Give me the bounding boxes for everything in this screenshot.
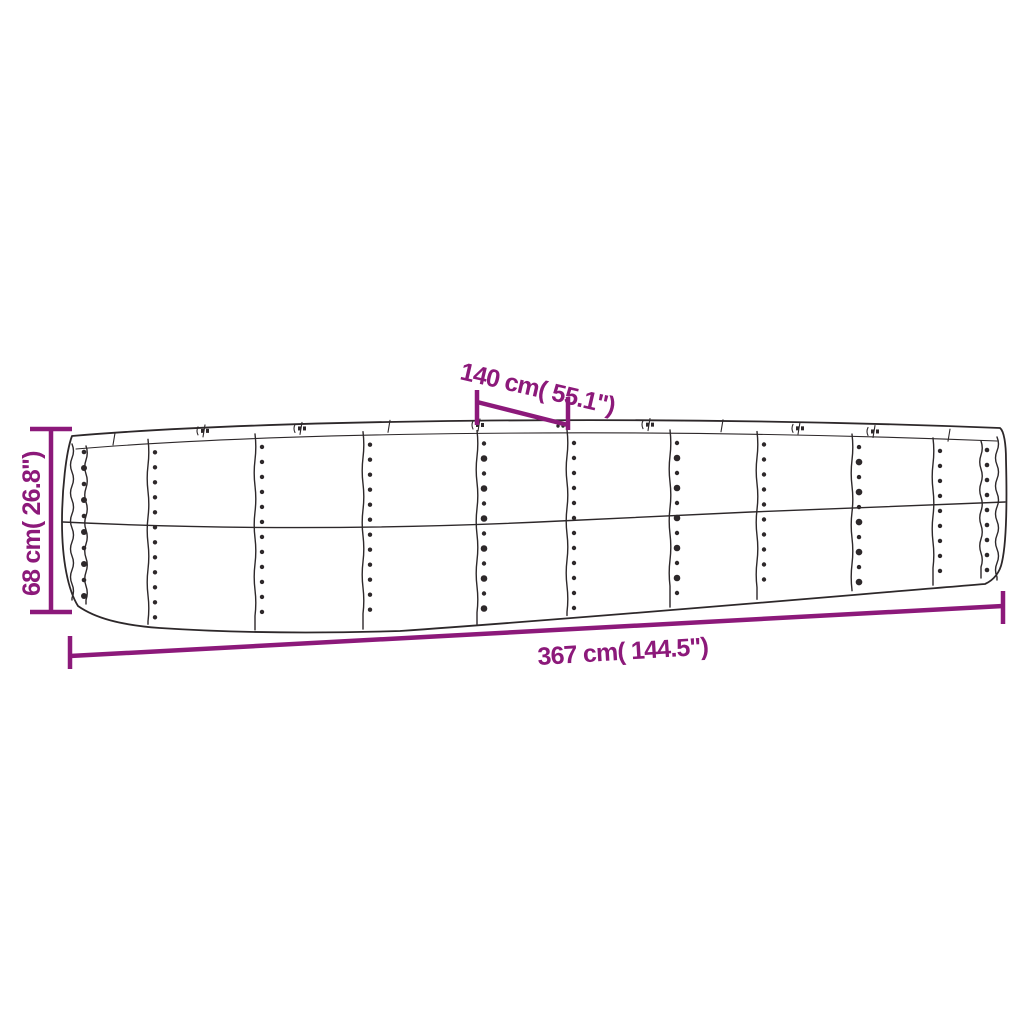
- right-corrugation: [980, 441, 983, 578]
- rivet-dot: [675, 531, 679, 535]
- rivet-dot: [762, 517, 766, 521]
- rivet-dot: [481, 545, 488, 552]
- rivet-dot: [856, 519, 863, 526]
- rim-clip-icon: [876, 429, 879, 433]
- rivet-dot: [153, 480, 157, 484]
- rivet-dot: [674, 575, 681, 582]
- rivet-dot: [260, 505, 264, 509]
- rivet-dot: [481, 455, 488, 462]
- rivet-dot: [82, 546, 87, 551]
- rivet-dot: [938, 554, 942, 558]
- rivet-dot: [572, 591, 576, 595]
- rivet-dot: [572, 471, 576, 475]
- rivet-dot: [856, 579, 863, 586]
- rivet-dot: [938, 449, 942, 453]
- rivet-dot: [985, 463, 990, 468]
- rivet-dot: [260, 610, 264, 614]
- rivet-dot: [82, 514, 87, 519]
- rivet-dot: [368, 593, 372, 597]
- rivet-dot: [260, 595, 264, 599]
- rivet-dot: [675, 441, 679, 445]
- rim-clip-icon: [642, 421, 643, 429]
- rivet-dot: [481, 515, 488, 522]
- rivet-dot: [572, 531, 576, 535]
- rivet-dot: [857, 535, 861, 539]
- rivet-dot: [856, 549, 863, 556]
- rivet-dot: [81, 593, 87, 599]
- rivet-dot: [938, 539, 942, 543]
- rim-clip-icon: [294, 424, 295, 432]
- rivet-dot: [153, 570, 157, 574]
- rivet-dot: [985, 553, 990, 558]
- rivet-dot: [481, 605, 488, 612]
- rivet-dot: [368, 503, 372, 507]
- rivet-dot: [572, 486, 576, 490]
- rivet-dot: [985, 508, 990, 513]
- panel-seam: [851, 434, 853, 591]
- panel-seam: [669, 430, 671, 607]
- rivet-dot: [762, 472, 766, 476]
- rivet-dot: [985, 448, 990, 453]
- rivet-dot: [153, 450, 157, 454]
- rivet-dot: [762, 502, 766, 506]
- rivet-dot: [153, 465, 157, 469]
- rivet-dot: [260, 550, 264, 554]
- rivet-dot: [368, 578, 372, 582]
- height-label: 68 cm( 26.8"): [18, 451, 46, 596]
- panel-seam: [756, 432, 758, 600]
- rivet-dot: [260, 475, 264, 479]
- dimension-height: 68 cm( 26.8"): [18, 429, 72, 612]
- rim-clip-icon: [801, 426, 804, 430]
- rivet-dot: [572, 441, 576, 445]
- rivet-dot: [938, 479, 942, 483]
- rivet-dot: [82, 450, 87, 455]
- rivet-dot: [572, 606, 576, 610]
- garden-bed-drawing: [62, 419, 1007, 633]
- rivet-dot: [481, 575, 488, 582]
- rivet-dot: [572, 501, 576, 505]
- rivet-dot: [985, 523, 990, 528]
- rivet-dot: [938, 494, 942, 498]
- rivet-dot: [675, 591, 679, 595]
- rivet-dot: [762, 442, 766, 446]
- rim-clip-icon: [303, 426, 306, 430]
- rivet-dot: [856, 459, 863, 466]
- rivet-dot: [482, 561, 486, 565]
- rivet-dot: [674, 485, 681, 492]
- rim-clip-icon: [792, 424, 793, 432]
- rivet-dot: [938, 464, 942, 468]
- rivet-dot: [674, 545, 681, 552]
- rim-clip-icon: [651, 423, 654, 427]
- diagram-canvas: 68 cm( 26.8") 140 cm( 55.1") 367 cm( 144…: [0, 0, 1024, 1024]
- panel-seam: [147, 439, 149, 624]
- rim-clip-icon: [472, 421, 473, 429]
- rivet-dot: [260, 445, 264, 449]
- rivet-dot: [857, 565, 861, 569]
- rivet-dot: [260, 520, 264, 524]
- rivet-dot: [81, 529, 87, 535]
- rivet-dot: [938, 524, 942, 528]
- rim-clip-icon: [867, 427, 868, 435]
- rivet-dot: [675, 561, 679, 565]
- rivet-dot: [985, 493, 990, 498]
- rivet-dot: [153, 510, 157, 514]
- rivet-dot: [857, 475, 861, 479]
- rivet-dot: [368, 608, 372, 612]
- rivet-dot: [82, 482, 87, 487]
- panel-seam: [566, 430, 568, 615]
- rim-clip-icon: [481, 423, 484, 427]
- rivet-dot: [762, 577, 766, 581]
- rivet-dot: [762, 457, 766, 461]
- rivet-dot: [153, 525, 157, 529]
- rivet-dot: [260, 460, 264, 464]
- length-label: 367 cm( 144.5"): [537, 633, 710, 671]
- rivet-dot: [675, 471, 679, 475]
- rivet-dot: [153, 495, 157, 499]
- rivet-dot: [572, 576, 576, 580]
- panel-seam: [476, 431, 478, 625]
- rivet-dot: [82, 578, 87, 583]
- rivet-dot: [482, 471, 486, 475]
- rivet-dot: [368, 488, 372, 492]
- rivet-dot: [857, 445, 861, 449]
- rim-clip-icon: [206, 429, 209, 433]
- rivet-dot: [762, 562, 766, 566]
- dimension-annotations: 68 cm( 26.8") 140 cm( 55.1") 367 cm( 144…: [18, 358, 1003, 671]
- rivet-dot: [985, 478, 990, 483]
- rivet-dot: [762, 547, 766, 551]
- rivet-dot: [482, 441, 486, 445]
- rivet-dot: [81, 465, 87, 471]
- rivet-dot: [762, 532, 766, 536]
- rivet-dot: [856, 489, 863, 496]
- rivet-dot: [368, 458, 372, 462]
- rivet-dot: [572, 516, 576, 520]
- rivet-dot: [260, 565, 264, 569]
- rivet-dot: [572, 456, 576, 460]
- rivet-dot: [572, 561, 576, 565]
- dimension-end-width: 140 cm( 55.1"): [458, 358, 618, 430]
- rivet-dot: [985, 568, 990, 573]
- rivet-dot: [762, 487, 766, 491]
- rim-clip-icon: [646, 423, 649, 427]
- rivet-dot: [260, 580, 264, 584]
- panel-seam: [254, 434, 256, 630]
- rivet-dot: [675, 501, 679, 505]
- rivet-dot: [857, 505, 861, 509]
- rim-clip-icon: [298, 426, 301, 430]
- rivet-dot: [368, 443, 372, 447]
- rivet-dot: [81, 561, 87, 567]
- rivet-dot: [674, 515, 681, 522]
- panel-seam: [362, 432, 364, 629]
- rim-clip-icon: [871, 429, 874, 433]
- end-width-label: 140 cm( 55.1"): [458, 358, 618, 421]
- rivet-dot: [482, 591, 486, 595]
- rivet-dot: [153, 615, 157, 619]
- rivet-dot: [482, 501, 486, 505]
- rim-clip-icon: [201, 429, 204, 433]
- rivet-dot: [260, 535, 264, 539]
- rivet-dot: [572, 546, 576, 550]
- rivet-dot: [153, 540, 157, 544]
- middle-seam: [63, 502, 1005, 528]
- rim-clip-icon: [197, 427, 198, 435]
- rivet-dot: [985, 538, 990, 543]
- right-corrugation: [996, 437, 999, 580]
- dimension-diagram-svg: 68 cm( 26.8") 140 cm( 55.1") 367 cm( 144…: [0, 0, 1024, 1024]
- rivet-dot: [481, 485, 488, 492]
- rivet-dot: [153, 555, 157, 559]
- rivet-dot: [368, 563, 372, 567]
- rivet-dot: [482, 531, 486, 535]
- rim-divider: [113, 433, 115, 445]
- rim-clip-icon: [796, 426, 799, 430]
- rivet-dot: [938, 509, 942, 513]
- rivet-dot: [260, 490, 264, 494]
- rivet-dot: [368, 518, 372, 522]
- panel-seam: [932, 438, 934, 585]
- rivet-dot: [81, 497, 87, 503]
- panel-details: [71, 419, 999, 630]
- rivet-dot: [938, 569, 942, 573]
- rivet-dot: [153, 585, 157, 589]
- rivet-dot: [153, 600, 157, 604]
- rivet-dot: [368, 533, 372, 537]
- rivet-dot: [368, 473, 372, 477]
- rivet-dot: [368, 548, 372, 552]
- rivet-dot: [674, 455, 681, 462]
